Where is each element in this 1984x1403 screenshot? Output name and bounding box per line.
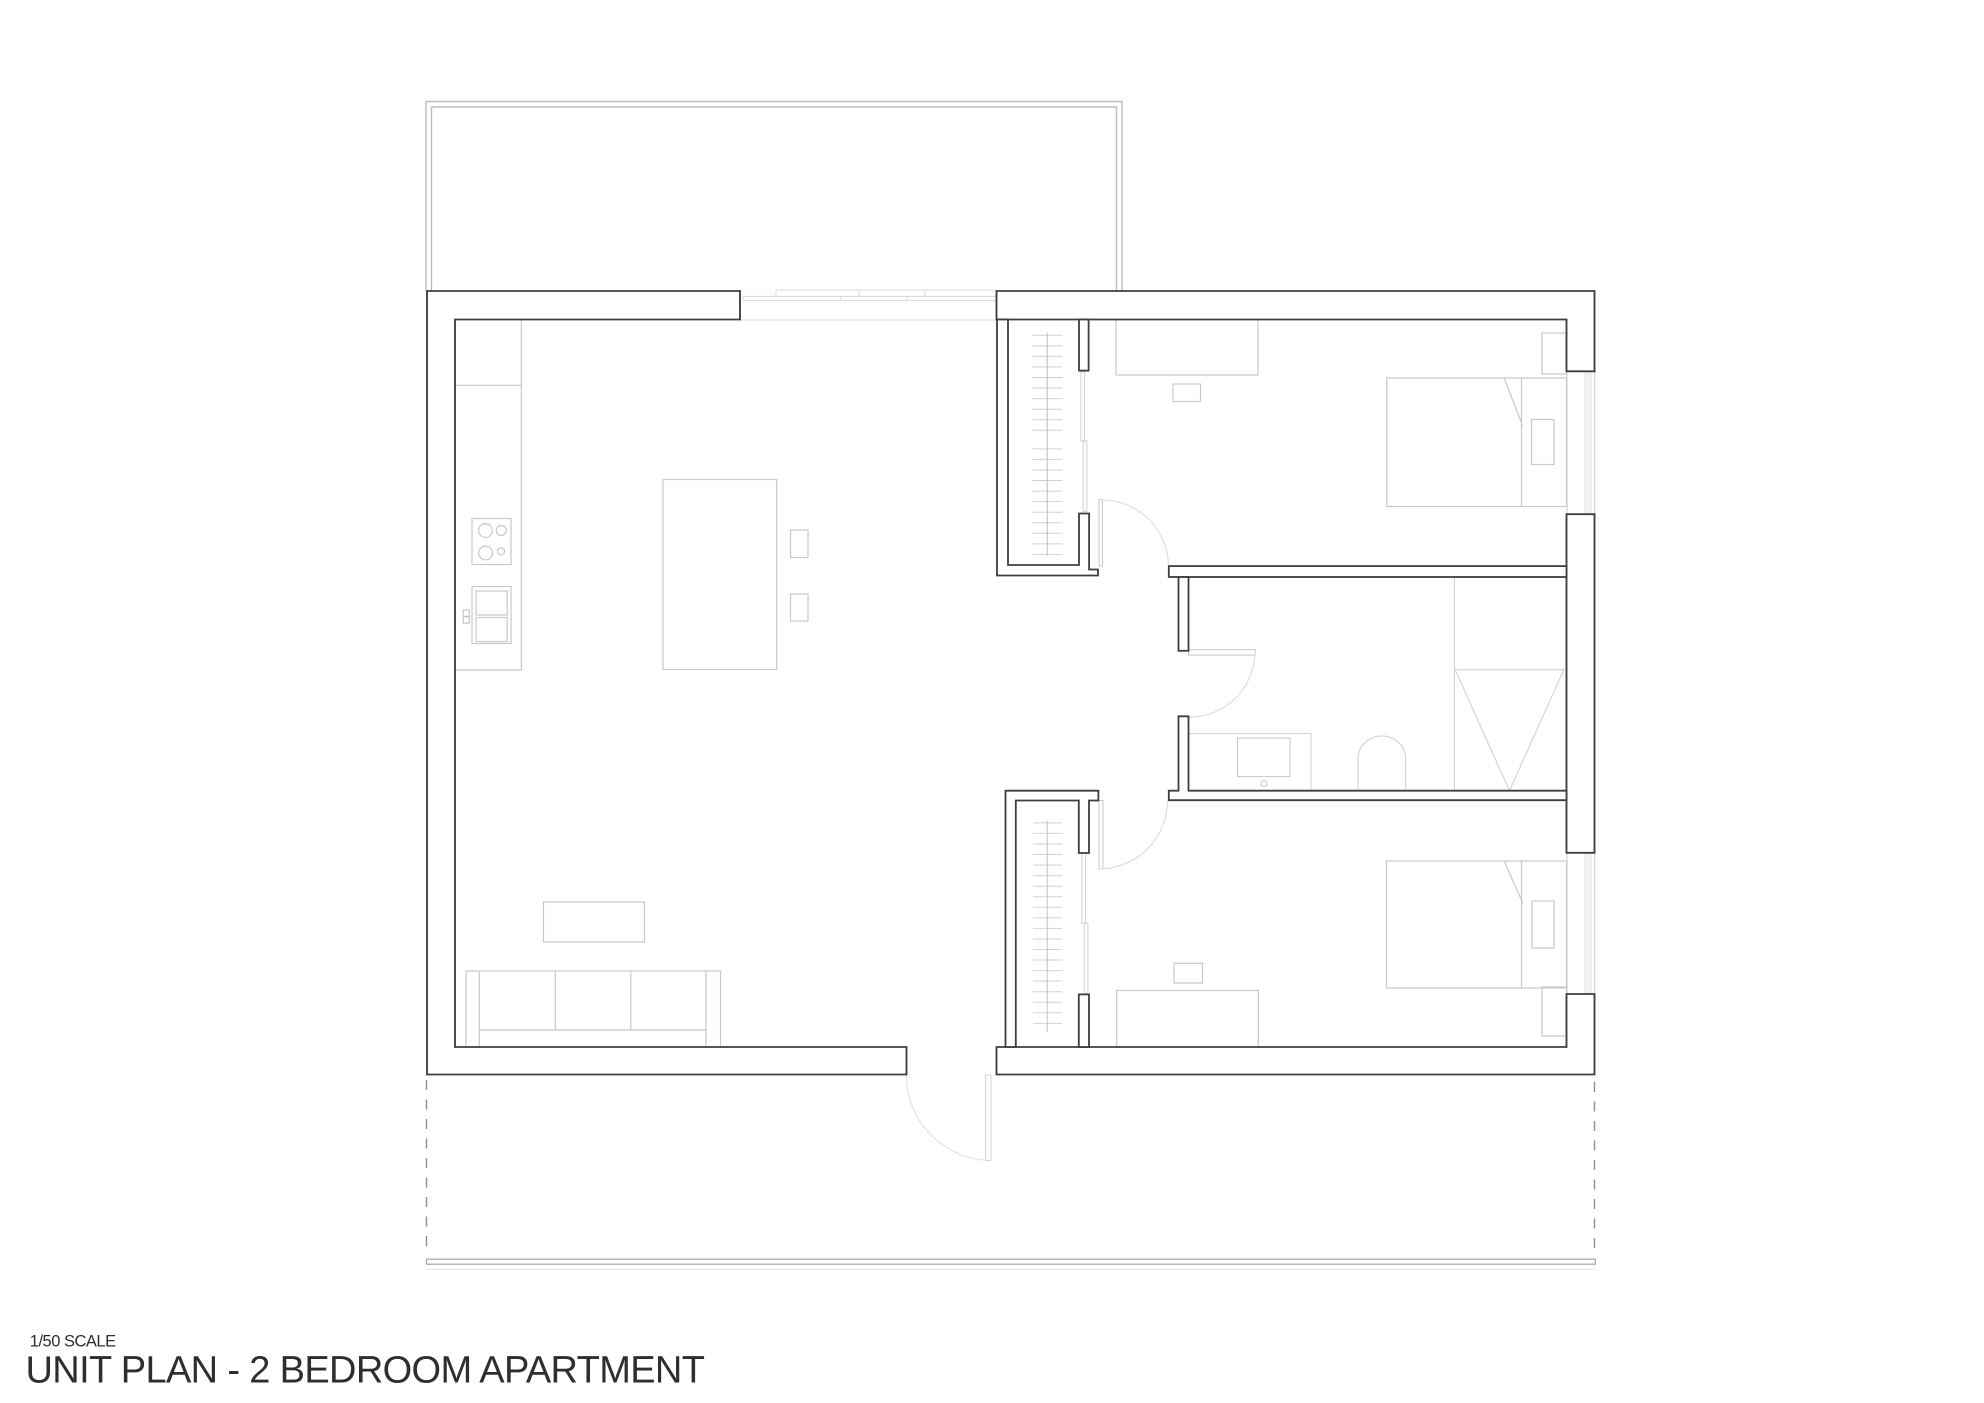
svg-text:1/50 SCALE: 1/50 SCALE: [30, 1333, 116, 1351]
svg-text:UNIT PLAN - 2 BEDROOM APARTMEN: UNIT PLAN - 2 BEDROOM APARTMENT: [26, 1350, 705, 1392]
